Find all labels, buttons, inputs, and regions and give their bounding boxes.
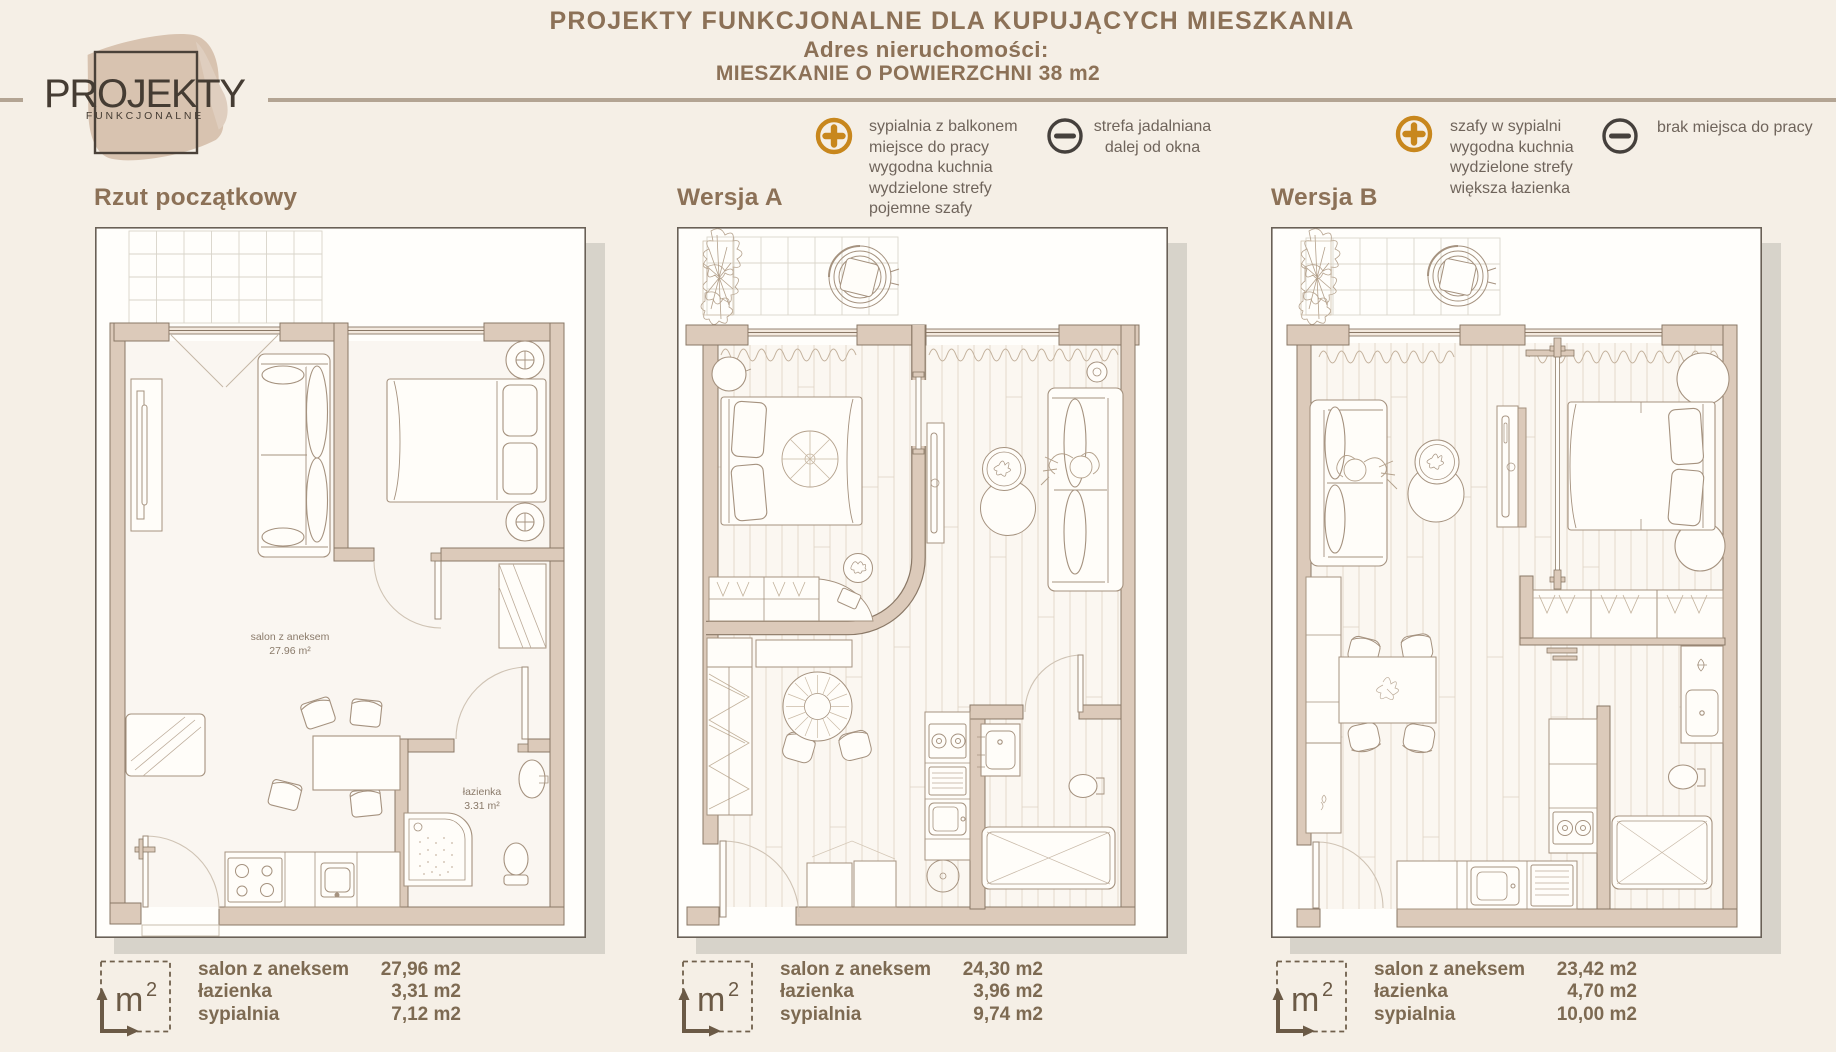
svg-text:salon z aneksem: salon z aneksem bbox=[251, 631, 330, 643]
svg-text:2: 2 bbox=[146, 979, 157, 1001]
svg-text:m: m bbox=[115, 981, 143, 1019]
svg-text:2: 2 bbox=[1322, 979, 1333, 1001]
svg-text:2: 2 bbox=[728, 979, 739, 1001]
svg-text:3.31 m²: 3.31 m² bbox=[464, 800, 500, 812]
svg-text:27.96 m²: 27.96 m² bbox=[269, 645, 311, 657]
svg-text:m: m bbox=[1291, 981, 1319, 1019]
svg-text:m: m bbox=[697, 981, 725, 1019]
svg-text:łazienka: łazienka bbox=[463, 786, 502, 798]
